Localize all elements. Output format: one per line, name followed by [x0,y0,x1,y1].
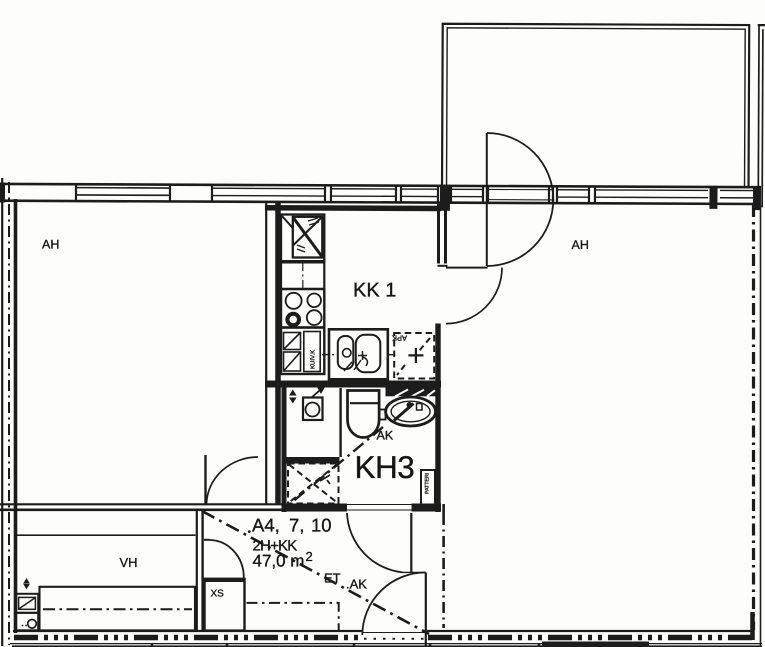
svg-text:AK: AK [377,429,394,443]
svg-text:KK 1: KK 1 [353,280,396,302]
svg-text:.AK: .AK [346,577,367,592]
svg-text:KUIV.K: KUIV.K [310,350,317,369]
svg-text:PATTERI: PATTERI [425,473,431,494]
svg-text:AH: AH [42,238,59,252]
svg-text:XS: XS [211,589,225,600]
svg-text:AH: AH [572,238,589,252]
svg-text:APK: APK [392,334,407,343]
svg-text:KH3: KH3 [355,449,415,485]
svg-text:10: 10 [311,515,332,536]
svg-text:7,: 7, [289,515,304,536]
svg-text:ET: ET [324,571,341,586]
svg-text:A4,: A4, [252,515,280,536]
svg-text:47,0 m2: 47,0 m2 [253,549,313,571]
svg-text:VH: VH [120,555,138,570]
